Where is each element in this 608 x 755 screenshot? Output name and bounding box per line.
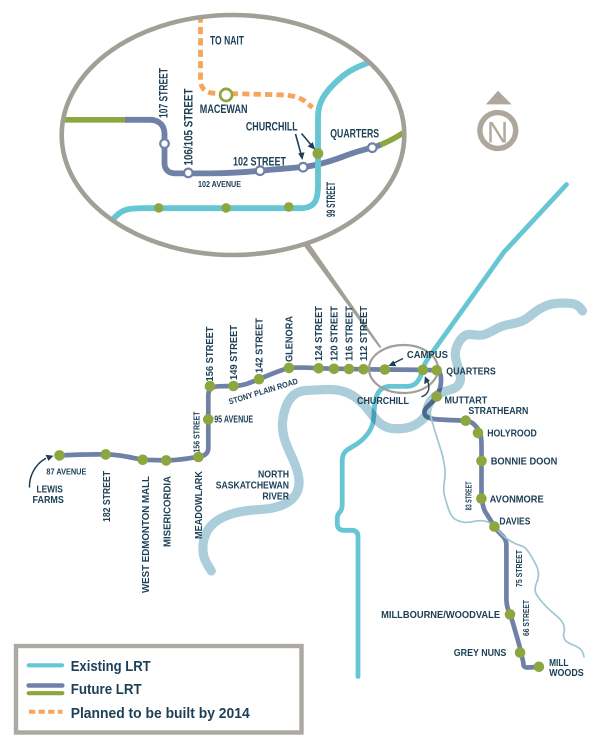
svg-text:107 STREET: 107 STREET [157,68,171,118]
svg-text:LEWIS: LEWIS [37,485,63,496]
svg-text:AVONMORE: AVONMORE [490,495,544,506]
svg-text:WEST EDMONTON MALL: WEST EDMONTON MALL [141,475,152,593]
svg-text:NORTH: NORTH [258,470,289,481]
svg-text:149 STREET: 149 STREET [229,324,240,380]
svg-text:112 STREET: 112 STREET [359,305,370,361]
svg-text:66 STREET: 66 STREET [522,600,531,636]
svg-text:SASKATCHEWAN: SASKATCHEWAN [216,481,289,492]
svg-text:102 STREET: 102 STREET [233,155,286,169]
svg-text:142 STREET: 142 STREET [254,317,265,373]
svg-text:Future LRT: Future LRT [71,682,142,698]
svg-text:FARMS: FARMS [33,495,64,506]
svg-text:182 STREET: 182 STREET [102,470,113,522]
svg-text:83 STREET: 83 STREET [464,481,473,510]
svg-text:BONNIE DOON: BONNIE DOON [491,457,558,468]
svg-text:MEADOWLARK: MEADOWLARK [194,471,205,539]
svg-text:RIVER: RIVER [262,492,289,503]
svg-text:95 AVENUE: 95 AVENUE [214,414,253,425]
svg-text:102 AVENUE: 102 AVENUE [198,180,241,189]
svg-text:156 STREET: 156 STREET [193,412,202,453]
svg-text:MILLBOURNE/WOODVALE: MILLBOURNE/WOODVALE [381,610,500,621]
svg-text:QUARTERS: QUARTERS [330,126,379,140]
svg-text:MACEWAN: MACEWAN [200,102,248,116]
svg-text:156 STREET: 156 STREET [205,326,216,382]
svg-text:MISERICORDIA: MISERICORDIA [162,476,173,547]
svg-text:Existing LRT: Existing LRT [71,659,151,675]
svg-text:STRATHEARN: STRATHEARN [468,406,528,417]
svg-text:GLENORA: GLENORA [284,316,295,362]
svg-text:116 STREET: 116 STREET [344,305,355,361]
svg-text:CHURCHILL: CHURCHILL [246,120,298,134]
svg-text:QUARTERS: QUARTERS [446,367,496,378]
svg-text:TO NAIT: TO NAIT [210,34,244,48]
svg-text:WOODS: WOODS [549,668,584,679]
svg-text:75 STREET: 75 STREET [515,550,524,587]
svg-text:99 STREET: 99 STREET [324,182,338,217]
svg-text:Planned to be built by 2014: Planned to be built by 2014 [71,706,250,722]
svg-text:MUTTART: MUTTART [445,396,488,407]
svg-text:DAVIES: DAVIES [499,517,530,528]
svg-text:HOLYROOD: HOLYROOD [487,429,537,440]
svg-text:120 STREET: 120 STREET [329,305,340,361]
svg-text:CHURCHILL: CHURCHILL [357,396,410,407]
svg-text:N: N [487,117,508,150]
svg-text:106/105 STREET: 106/105 STREET [182,88,196,166]
svg-text:87 AVENUE: 87 AVENUE [46,468,86,477]
svg-text:124 STREET: 124 STREET [314,305,325,361]
svg-text:GREY NUNS: GREY NUNS [454,648,507,659]
svg-text:CAMPUS: CAMPUS [407,350,448,361]
